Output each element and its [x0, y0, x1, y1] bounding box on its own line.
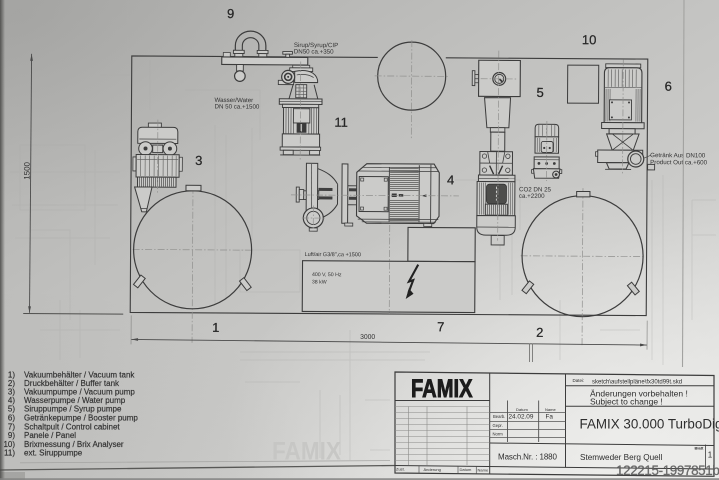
svg-text:38 kW: 38 kW — [312, 279, 327, 285]
svg-text:11): 11) — [4, 449, 15, 458]
svg-text:FAMIX: FAMIX — [411, 375, 473, 403]
svg-text:Masch.Nr. : 1880: Masch.Nr. : 1880 — [498, 452, 558, 461]
svg-text:9: 9 — [227, 6, 234, 21]
svg-text:Subject to change !: Subject to change ! — [590, 396, 663, 406]
svg-text:Datei:: Datei: — [573, 378, 585, 383]
svg-text:3000: 3000 — [360, 334, 375, 341]
svg-text:FAMIX 30.000 TurboDigi: FAMIX 30.000 TurboDigi — [580, 416, 719, 431]
svg-text:Datum: Datum — [460, 467, 472, 472]
svg-text:5: 5 — [537, 85, 544, 100]
svg-text:Gepr.: Gepr. — [493, 423, 503, 428]
svg-text:Fa: Fa — [546, 413, 554, 420]
svg-text:1: 1 — [708, 451, 713, 460]
svg-text:7): 7) — [8, 422, 15, 431]
svg-text:Luft/air G3/8",ca +1500: Luft/air G3/8",ca +1500 — [305, 252, 361, 258]
svg-text:122215-1997851b: 122215-1997851b — [616, 463, 719, 478]
svg-text:Änderung: Änderung — [424, 467, 441, 472]
svg-text:5): 5) — [8, 404, 15, 413]
svg-text:7: 7 — [437, 319, 444, 334]
svg-text:Zust.: Zust. — [396, 467, 405, 472]
svg-text:6): 6) — [8, 413, 15, 422]
svg-text:sketch\aufstellpläne\fx30td99t: sketch\aufstellpläne\fx30td99t.skd — [592, 380, 682, 386]
svg-text:1: 1 — [212, 320, 219, 335]
svg-text:Stemweder Berg Quell: Stemweder Berg Quell — [580, 453, 663, 462]
svg-text:1500: 1500 — [23, 161, 32, 179]
svg-text:2: 2 — [536, 325, 543, 340]
svg-text:DN50 ca.+350: DN50 ca.+350 — [294, 48, 334, 55]
svg-text:Datum: Datum — [516, 407, 528, 412]
svg-text:400 V, 50 Hz: 400 V, 50 Hz — [312, 272, 342, 278]
svg-text:Getränkepumpe / Booster pump: Getränkepumpe / Booster pump — [24, 413, 138, 422]
svg-text:Norm: Norm — [493, 432, 504, 437]
svg-text:Panele / Panel: Panele / Panel — [24, 431, 76, 440]
svg-text:10: 10 — [582, 32, 597, 47]
svg-text:Blatt: Blatt — [695, 446, 705, 451]
svg-text:ca.+2200: ca.+2200 — [519, 193, 545, 200]
svg-text:3: 3 — [195, 153, 202, 168]
svg-text:11: 11 — [334, 115, 348, 130]
svg-text:6: 6 — [665, 79, 672, 94]
svg-text:Siruppumpe / Syrup pumpe: Siruppumpe / Syrup pumpe — [24, 404, 122, 413]
svg-text:Schaltpult / Control cabinet: Schaltpult / Control cabinet — [24, 422, 120, 431]
svg-text:DN 50 ca.+1500: DN 50 ca.+1500 — [214, 103, 259, 110]
svg-text:4: 4 — [447, 172, 454, 187]
svg-text:Product Out ca.+600: Product Out ca.+600 — [650, 159, 708, 166]
svg-text:24.02.09: 24.02.09 — [509, 413, 534, 420]
svg-text:Bearb.: Bearb. — [493, 414, 505, 419]
svg-text:Name: Name — [545, 407, 556, 412]
svg-text:ext. Siruppumpe: ext. Siruppumpe — [24, 449, 83, 458]
svg-text:Name: Name — [478, 467, 489, 472]
svg-text:9): 9) — [8, 431, 15, 440]
